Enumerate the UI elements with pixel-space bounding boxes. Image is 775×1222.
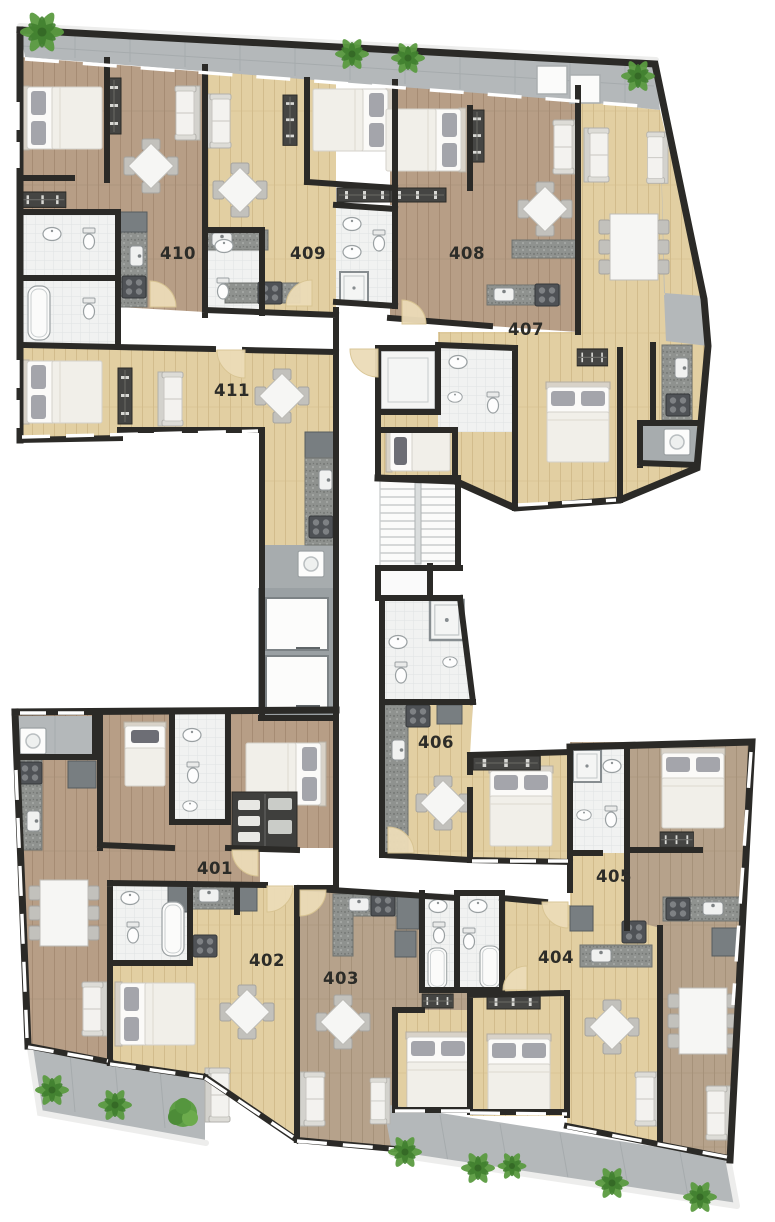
single-bed-icon xyxy=(386,430,450,472)
sofa-icon xyxy=(300,1072,325,1126)
unit-label-410: 410 xyxy=(160,244,196,263)
bidet-icon xyxy=(448,392,462,402)
unit-label-402: 402 xyxy=(249,951,285,970)
double-bed-icon xyxy=(487,1034,551,1114)
armchair-icon xyxy=(370,1078,390,1124)
unit-label-404: 404 xyxy=(538,948,574,967)
wardrobe-icon xyxy=(283,95,297,145)
unit-label-407: 407 xyxy=(508,320,544,339)
wardrobe-icon xyxy=(20,192,66,207)
washer-icon xyxy=(298,551,324,577)
sofa-icon xyxy=(553,120,578,174)
shower-icon xyxy=(573,750,601,782)
double-bed-icon xyxy=(489,766,553,846)
sofa-icon xyxy=(706,1086,731,1140)
oval-sink-icon xyxy=(121,892,139,905)
sofa-icon xyxy=(175,86,200,140)
armchair-icon xyxy=(647,132,668,183)
oval-sink-icon xyxy=(449,356,467,369)
toilet-icon xyxy=(463,928,475,949)
stairs-rail xyxy=(415,483,421,564)
toilet-icon xyxy=(187,762,199,783)
oval-sink-icon xyxy=(343,246,361,259)
toilet-icon xyxy=(395,662,407,683)
oval-sink-icon xyxy=(215,240,233,253)
floor-plan-page: 401 402 403 404 405 406 407 408 409 410 … xyxy=(0,0,775,1222)
sofa-icon xyxy=(206,94,231,148)
double-bed-icon xyxy=(115,982,195,1046)
wardrobe-icon xyxy=(473,756,540,770)
elevator-cabin-1 xyxy=(266,598,328,650)
bathtub-icon xyxy=(428,948,447,989)
toilet-icon xyxy=(487,392,499,413)
unit-label-405: 405 xyxy=(596,867,632,886)
wardrobe-icon xyxy=(422,994,453,1008)
toilet-icon xyxy=(433,922,445,943)
dining-table-6-icon xyxy=(29,880,99,946)
sofa-icon xyxy=(635,1072,660,1126)
washer-icon xyxy=(20,728,46,754)
wardrobe-icon xyxy=(577,349,608,366)
double-bed-icon xyxy=(22,86,102,150)
bathtub-icon xyxy=(480,946,500,988)
double-bed-icon xyxy=(661,748,725,828)
sofa-icon xyxy=(584,128,609,182)
floor-plan-canvas: 401 402 403 404 405 406 407 408 409 410 … xyxy=(0,0,775,1222)
toilet-icon xyxy=(373,230,385,251)
unit-401-bathroom xyxy=(172,712,228,824)
unit-407-bathroom xyxy=(438,345,515,432)
bidet-icon xyxy=(443,657,457,667)
unit-410-kitchen xyxy=(120,212,147,307)
dining-table-6-icon xyxy=(668,988,738,1054)
oval-sink-icon xyxy=(343,218,361,231)
unit-407-kitchen xyxy=(662,345,692,420)
unit-label-409: 409 xyxy=(290,244,326,263)
unit-label-403: 403 xyxy=(323,969,359,988)
unit-411-kitchen xyxy=(305,432,336,545)
oval-sink-icon xyxy=(183,729,201,742)
toilet-icon xyxy=(83,228,95,249)
double-bed-icon xyxy=(22,360,102,424)
bidet-icon xyxy=(577,810,591,820)
shower-icon xyxy=(340,272,368,304)
bathtub-icon xyxy=(28,286,50,340)
dining-table-6-icon xyxy=(599,214,669,280)
unit-401-closet xyxy=(232,792,297,848)
sofa-icon xyxy=(82,982,107,1036)
washer-icon xyxy=(664,429,690,455)
wardrobe-icon xyxy=(660,832,694,847)
double-bed-icon xyxy=(406,1032,470,1112)
toilet-icon xyxy=(127,922,139,943)
unit-label-406: 406 xyxy=(418,733,454,752)
oval-sink-icon xyxy=(389,636,407,649)
oval-sink-icon xyxy=(603,760,621,773)
unit-label-408: 408 xyxy=(449,244,485,263)
toilet-icon xyxy=(217,278,229,299)
oval-sink-icon xyxy=(429,900,447,913)
bathtub-icon xyxy=(162,902,184,956)
door-swing-407 xyxy=(350,349,378,377)
sofa-icon xyxy=(158,372,183,426)
double-bed-icon xyxy=(546,382,610,462)
toilet-icon xyxy=(605,806,617,827)
unit-label-401: 401 xyxy=(197,859,233,878)
single-bed-icon xyxy=(124,722,166,786)
unit-label-411: 411 xyxy=(214,381,250,400)
toilet-icon xyxy=(83,298,95,319)
wardrobe-icon xyxy=(118,368,132,424)
wardrobe-icon xyxy=(390,188,446,202)
bidet-icon xyxy=(183,801,197,811)
elevator-cabin-2 xyxy=(266,656,328,708)
oval-sink-icon xyxy=(469,900,487,913)
oval-sink-icon xyxy=(43,228,61,241)
double-bed-icon xyxy=(313,88,393,152)
